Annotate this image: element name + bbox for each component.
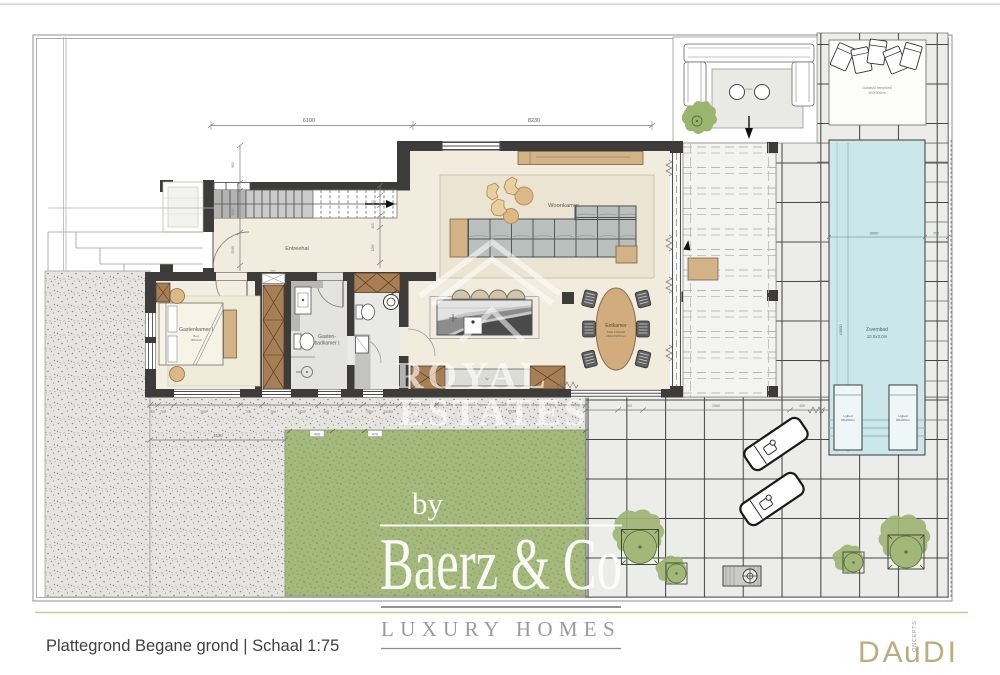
svg-text:700+: 700+ (366, 410, 374, 414)
svg-text:400: 400 (371, 200, 375, 206)
svg-text:DA: DA (858, 636, 906, 669)
svg-text:4120: 4120 (213, 433, 223, 438)
svg-text:10.0x3.0m: 10.0x3.0m (867, 334, 888, 339)
svg-text:badkamer I: badkamer I (314, 341, 339, 347)
svg-text:700: 700 (270, 410, 276, 414)
svg-text:Entreehal: Entreehal (285, 246, 309, 252)
svg-text:3000: 3000 (870, 231, 880, 236)
svg-text:LUXURY HOMES: LUXURY HOMES (381, 617, 621, 641)
svg-text:100: 100 (149, 410, 155, 414)
svg-text:1289: 1289 (371, 244, 375, 251)
svg-text:1320: 1320 (297, 410, 305, 414)
svg-text:180x210: 180x210 (190, 338, 202, 342)
svg-text:6100: 6100 (303, 118, 315, 124)
svg-text:Gastenkamer I: Gastenkamer I (179, 327, 213, 333)
svg-text:10000: 10000 (838, 324, 843, 336)
svg-text:Eetkamer: Eetkamer (605, 323, 627, 329)
svg-text:Gustavid hemelbed: Gustavid hemelbed (862, 86, 891, 90)
svg-text:700: 700 (245, 410, 251, 414)
svg-text:2549: 2549 (231, 246, 235, 254)
svg-text:2600x5200mm: 2600x5200mm (606, 334, 626, 338)
svg-text:500: 500 (626, 404, 632, 408)
svg-text:963: 963 (231, 162, 235, 168)
svg-text:DI: DI (923, 636, 959, 669)
svg-text:80x200cm: 80x200cm (841, 418, 855, 422)
svg-text:700: 700 (933, 232, 939, 236)
svg-text:400: 400 (314, 433, 320, 437)
svg-text:tafels: tafels (745, 87, 753, 91)
svg-text:700+: 700+ (200, 410, 208, 414)
svg-text:Plattegrond Begane grond | Sch: Plattegrond Begane grond | Schaal 1:75 (46, 637, 339, 655)
svg-text:ONCEPTS: ONCEPTS (912, 620, 918, 652)
svg-text:erfgrens perceel: erfgrens perceel (947, 288, 951, 311)
svg-text:80x200cm: 80x200cm (896, 418, 910, 422)
svg-text:400: 400 (371, 223, 375, 229)
svg-text:kast: kast (270, 269, 276, 273)
svg-text:8230: 8230 (528, 118, 540, 124)
svg-text:100: 100 (323, 410, 329, 414)
svg-text:Gasten-: Gasten- (318, 334, 336, 340)
svg-text:20100: 20100 (383, 410, 393, 414)
svg-text:Zwembad: Zwembad (866, 327, 888, 333)
svg-text:300x300cm: 300x300cm (868, 91, 886, 95)
svg-text:by: by (412, 486, 444, 521)
svg-text:700: 700 (160, 410, 166, 414)
svg-text:1100: 1100 (231, 208, 235, 215)
svg-text:Woonkamer: Woonkamer (548, 203, 579, 209)
svg-text:2560: 2560 (712, 404, 720, 408)
svg-text:400: 400 (799, 404, 805, 408)
svg-text:470: 470 (372, 433, 378, 437)
svg-text:ROYAL: ROYAL (396, 355, 550, 397)
svg-text:910: 910 (346, 410, 352, 414)
svg-text:ESTATES: ESTATES (399, 392, 589, 434)
svg-text:Baerz & Co: Baerz & Co (380, 522, 622, 605)
